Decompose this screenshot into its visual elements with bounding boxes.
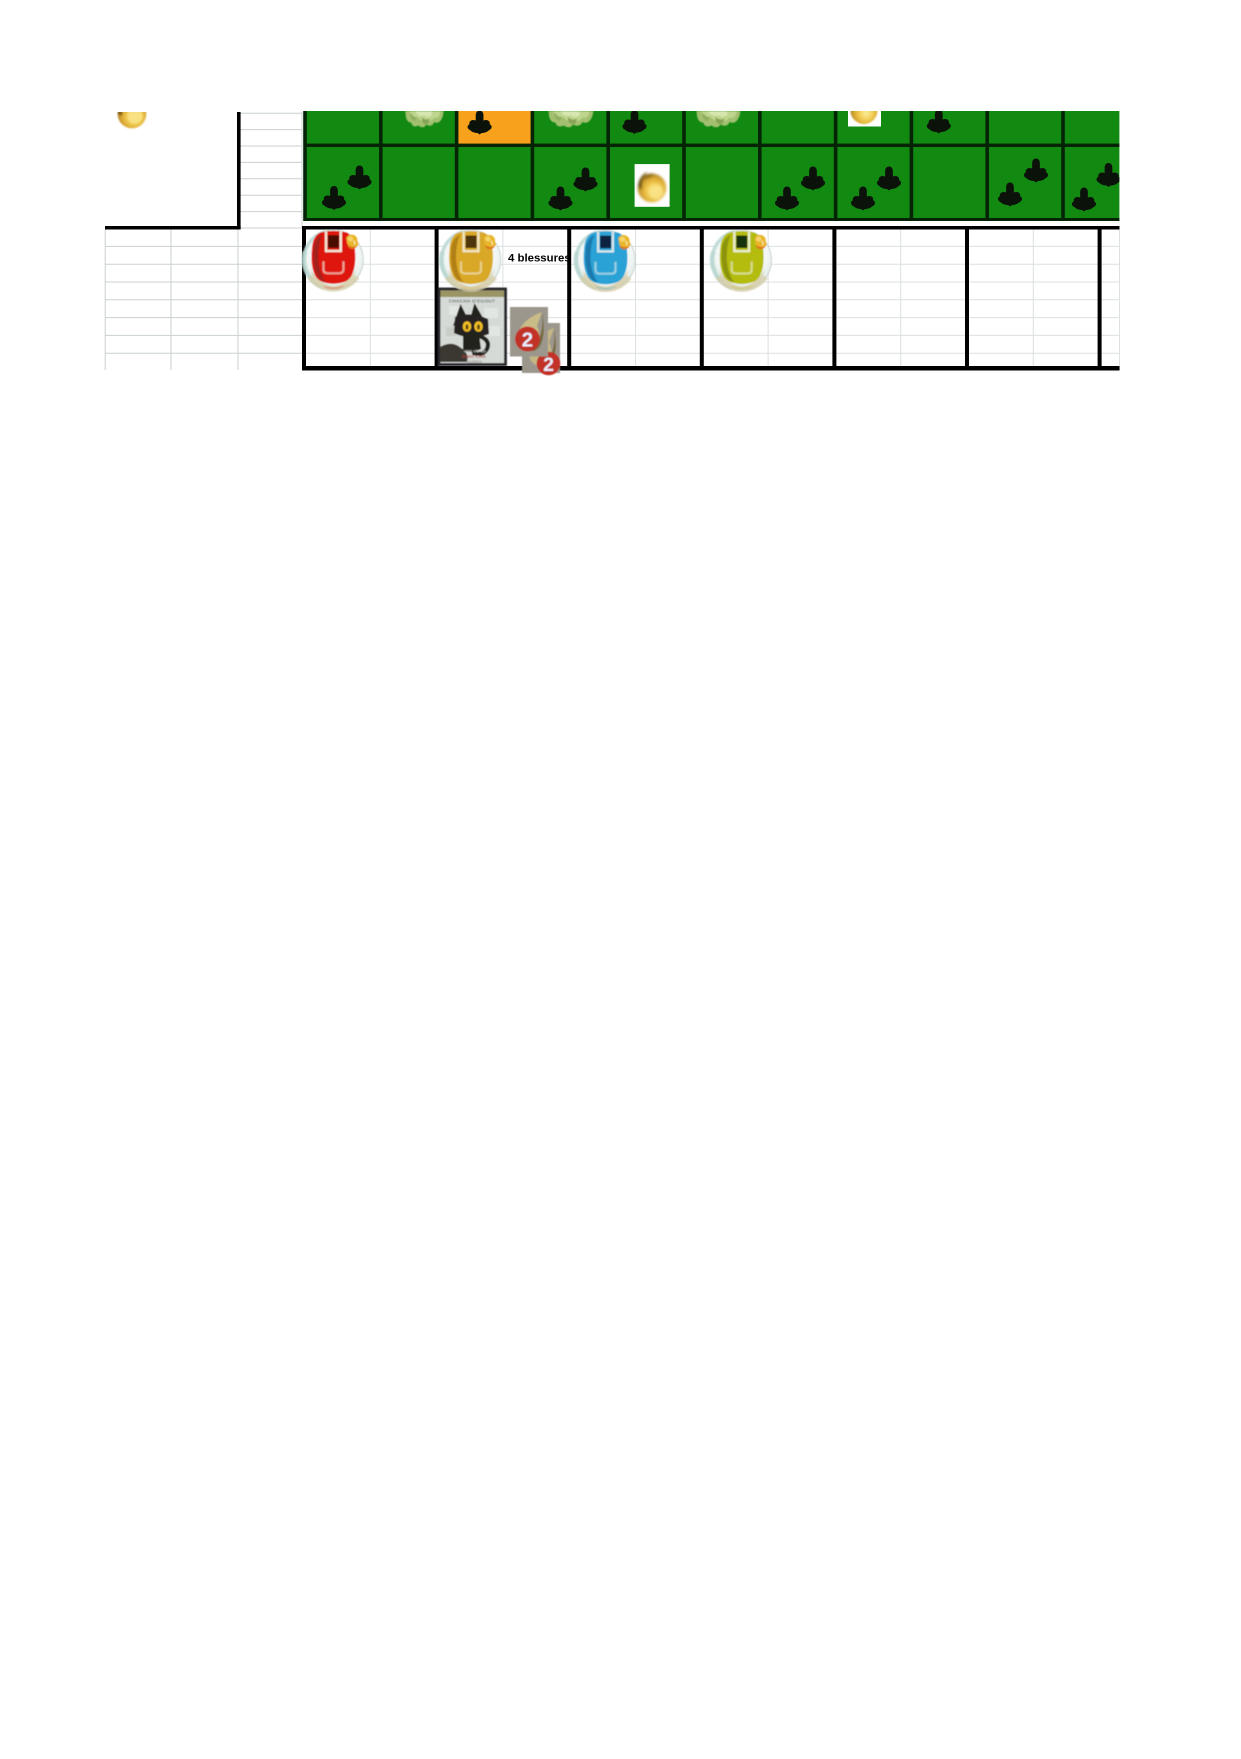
svg-text:4 blessures: 4 blessures <box>508 253 571 265</box>
svg-text:2: 2 <box>522 329 533 352</box>
svg-text:2: 2 <box>543 354 554 376</box>
svg-text:gouttiere: gouttiere <box>466 359 483 364</box>
svg-text:CHACHA D'EGOUT: CHACHA D'EGOUT <box>449 299 495 305</box>
